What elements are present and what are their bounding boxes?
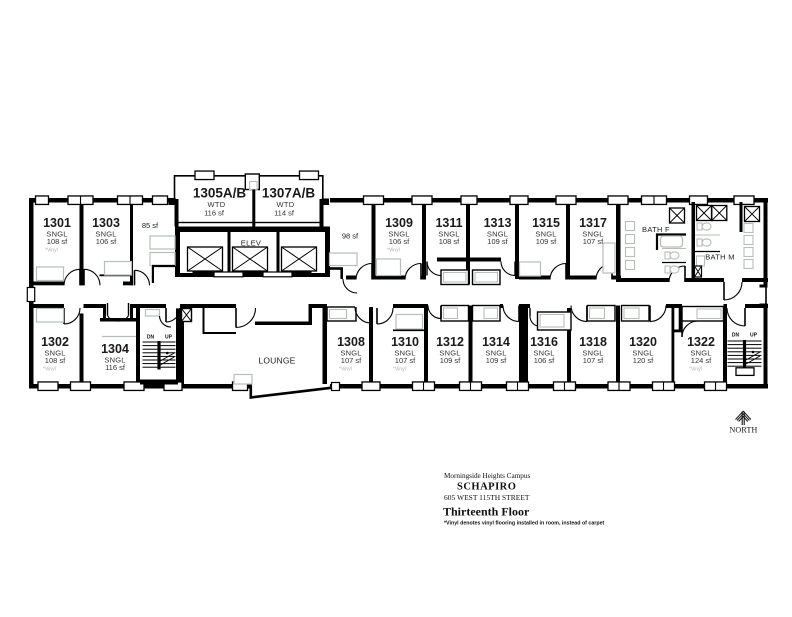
svg-text:107 sf: 107 sf: [583, 356, 604, 365]
svg-text:108 sf: 108 sf: [47, 237, 68, 246]
svg-text:1305A/B: 1305A/B: [193, 186, 247, 201]
svg-text:1320: 1320: [629, 335, 657, 349]
svg-text:1312: 1312: [436, 335, 464, 349]
svg-text:DN: DN: [147, 335, 155, 341]
svg-text:*Vinyl: *Vinyl: [339, 367, 352, 373]
svg-text:116 sf: 116 sf: [105, 363, 126, 372]
svg-text:NORTH: NORTH: [729, 426, 757, 435]
svg-text:120 sf: 120 sf: [633, 356, 654, 365]
svg-text:124 sf: 124 sf: [691, 356, 712, 365]
svg-text:UP: UP: [750, 333, 758, 339]
svg-text:1317: 1317: [579, 216, 607, 230]
svg-text:109 sf: 109 sf: [536, 237, 557, 246]
svg-text:1311: 1311: [435, 216, 462, 230]
svg-text:*Vinyl: *Vinyl: [43, 367, 56, 373]
svg-text:109 sf: 109 sf: [486, 356, 507, 365]
svg-text:UP: UP: [165, 335, 173, 341]
svg-text:1307A/B: 1307A/B: [262, 186, 316, 201]
svg-text:*Vinyl: *Vinyl: [393, 367, 406, 373]
svg-text:*Vinyl: *Vinyl: [387, 248, 400, 254]
svg-text:108 sf: 108 sf: [439, 237, 460, 246]
svg-text:*Vinyl: *Vinyl: [689, 367, 702, 373]
svg-text:1313: 1313: [484, 216, 512, 230]
svg-text:114 sf: 114 sf: [274, 209, 295, 218]
svg-text:1318: 1318: [579, 335, 607, 349]
svg-text:1308: 1308: [337, 335, 365, 349]
svg-text:ELEV: ELEV: [241, 239, 261, 248]
svg-text:98 sf: 98 sf: [342, 232, 359, 241]
svg-text:605 WEST 115TH STREET: 605 WEST 115TH STREET: [444, 493, 530, 502]
svg-text:LOUNGE: LOUNGE: [258, 356, 295, 366]
svg-text:BATH M: BATH M: [705, 253, 735, 262]
svg-text:1302: 1302: [41, 335, 69, 349]
svg-text:*Vinyl: *Vinyl: [45, 248, 58, 254]
svg-text:1322: 1322: [687, 335, 715, 349]
svg-text:*Vinyl denotes vinyl flooring: *Vinyl denotes vinyl flooring installed …: [444, 521, 605, 527]
svg-text:106 sf: 106 sf: [389, 237, 410, 246]
svg-text:109 sf: 109 sf: [487, 237, 508, 246]
svg-text:1315: 1315: [532, 216, 560, 230]
svg-text:BATH F: BATH F: [642, 225, 670, 234]
svg-text:1303: 1303: [92, 216, 120, 230]
svg-text:Thirteenth Floor: Thirteenth Floor: [443, 505, 530, 519]
svg-text:1304: 1304: [101, 342, 129, 356]
svg-text:DN: DN: [732, 333, 740, 339]
svg-text:1314: 1314: [482, 335, 510, 349]
svg-text:SCHAPIRO: SCHAPIRO: [457, 482, 516, 493]
svg-text:Morningside Heights Campus: Morningside Heights Campus: [444, 472, 530, 480]
svg-text:85 sf: 85 sf: [142, 221, 159, 230]
svg-text:109 sf: 109 sf: [440, 356, 461, 365]
svg-text:107 sf: 107 sf: [341, 356, 362, 365]
svg-text:107 sf: 107 sf: [583, 237, 604, 246]
svg-text:107 sf: 107 sf: [395, 356, 416, 365]
svg-text:106 sf: 106 sf: [534, 356, 555, 365]
svg-text:116 sf: 116 sf: [204, 209, 225, 218]
svg-text:108 sf: 108 sf: [45, 356, 66, 365]
svg-text:106 sf: 106 sf: [96, 237, 117, 246]
svg-text:1316: 1316: [530, 335, 558, 349]
svg-text:1309: 1309: [385, 216, 413, 230]
svg-text:1301: 1301: [43, 216, 71, 230]
svg-text:1310: 1310: [391, 335, 419, 349]
